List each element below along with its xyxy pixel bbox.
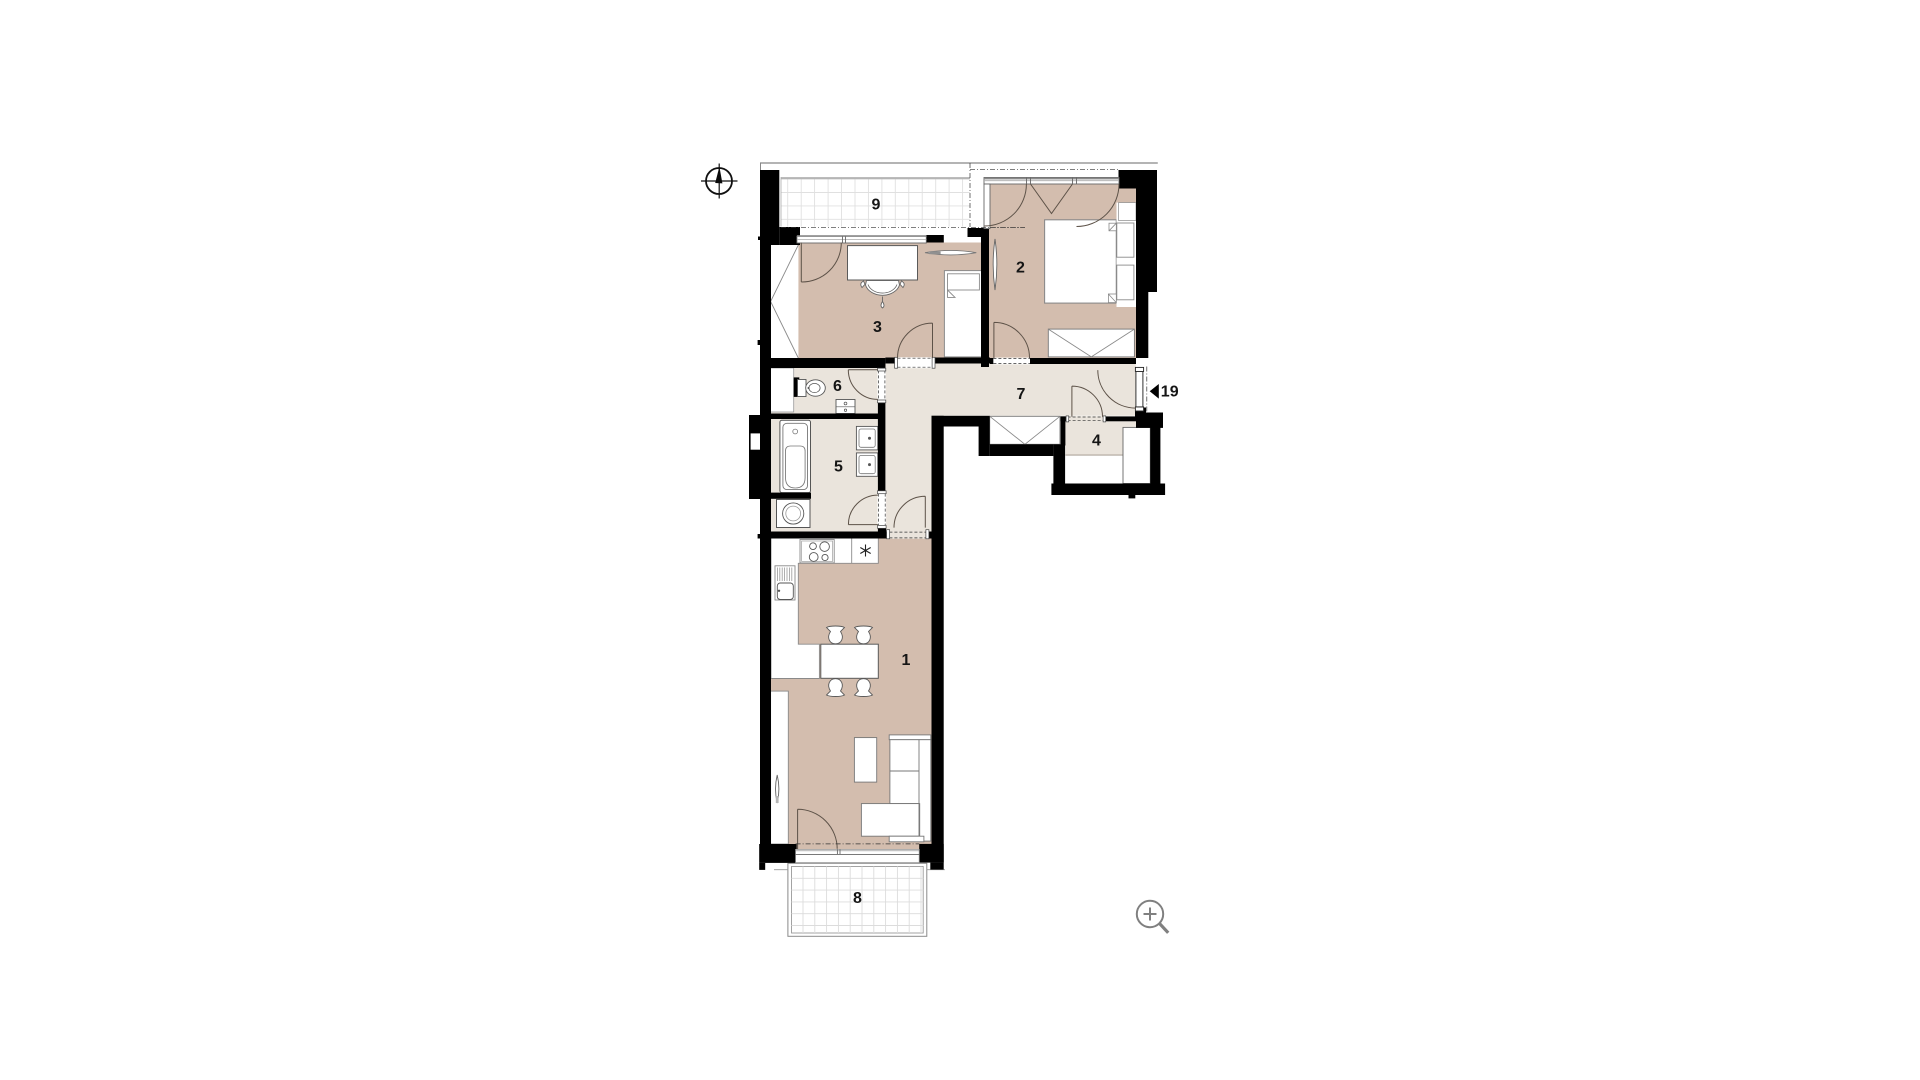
svg-text:8: 8 [853,890,862,907]
svg-text:2: 2 [1016,260,1025,277]
svg-text:7: 7 [1017,386,1026,403]
svg-text:1: 1 [902,652,911,669]
svg-text:19: 19 [1161,384,1179,401]
svg-text:5: 5 [834,459,843,476]
svg-text:3: 3 [873,319,882,336]
svg-text:6: 6 [833,378,842,395]
svg-text:4: 4 [1092,433,1101,450]
svg-text:9: 9 [872,197,881,214]
